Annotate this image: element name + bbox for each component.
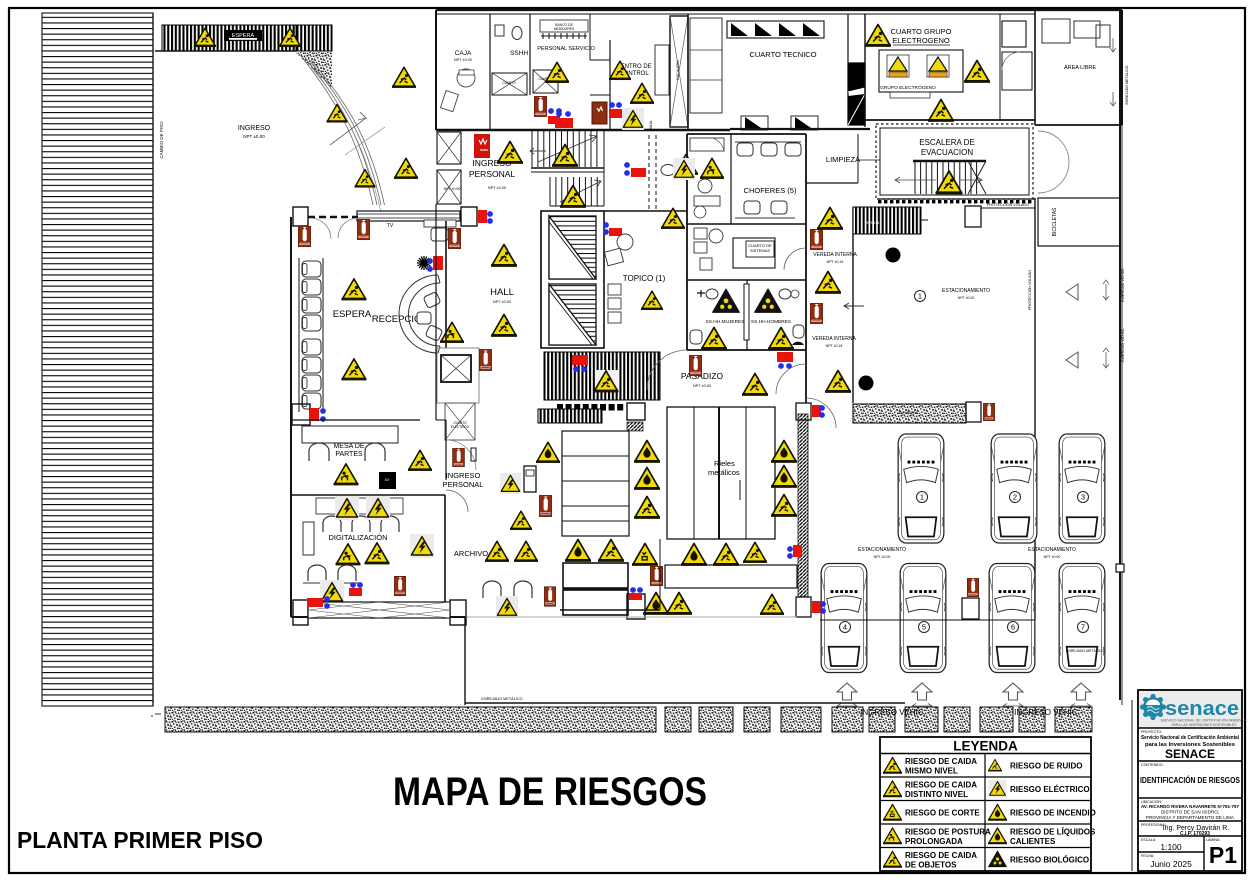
svg-text:PERSONAL: PERSONAL [443,480,484,489]
svg-text:RIESGO DE CAIDA: RIESGO DE CAIDA [905,757,977,766]
svg-text:SISTEMAS: SISTEMAS [750,248,771,253]
svg-text:SERVICIO NACIONAL DE CERTIFICA: SERVICIO NACIONAL DE CERTIFICACIÓN AMBIE… [1161,718,1248,723]
svg-text:NPT ±0.15: NPT ±0.15 [827,260,844,264]
svg-text:NPT ±0.00: NPT ±0.00 [444,187,461,191]
svg-text:SS.HH.MUJERES: SS.HH.MUJERES [706,319,745,325]
svg-text:RIESGO DE LÍQUIDOS: RIESGO DE LÍQUIDOS [1010,828,1096,837]
svg-text:2: 2 [1013,493,1017,502]
svg-text:ÁREA LIBRE: ÁREA LIBRE [1064,64,1096,71]
svg-text:ARCHIVO: ARCHIVO [454,549,488,558]
svg-text:SS.HH.HOMBRES: SS.HH.HOMBRES [751,319,791,325]
svg-text:CUARTO: CUARTO [502,81,516,85]
svg-text:PARA LAS INVERSIONES SOSTENIBL: PARA LAS INVERSIONES SOSTENIBLES [1172,723,1237,727]
svg-text:PERSONAL: PERSONAL [469,169,516,179]
svg-text:PROVINCIA Y DEPARTAMENTO DE LI: PROVINCIA Y DEPARTAMENTO DE LIMA [1146,815,1235,820]
svg-text:ESCALERA DE: ESCALERA DE [919,138,975,147]
svg-text:PROTECCIÓN VOLADO: PROTECCIÓN VOLADO [1027,270,1032,310]
svg-text:RIESGO DE CORTE: RIESGO DE CORTE [905,809,980,818]
svg-text:CAJA: CAJA [455,50,472,57]
svg-text:SSHH: SSHH [510,50,528,57]
svg-text:TV: TV [387,223,394,229]
svg-text:1:100: 1:100 [1160,842,1182,852]
svg-text:CUARTO GRUPO: CUARTO GRUPO [891,27,952,36]
svg-text:1: 1 [918,292,922,301]
svg-text:PLANTA PRIMER PISO: PLANTA PRIMER PISO [17,827,263,853]
svg-text:INGRESO: INGRESO [446,471,481,480]
svg-text:6: 6 [1011,623,1015,632]
svg-text:NPT ±0.00: NPT ±0.00 [493,300,511,304]
svg-text:DE OBJETOS: DE OBJETOS [905,861,957,870]
svg-text:RIESGO DE RUIDO: RIESGO DE RUIDO [1010,762,1082,771]
svg-text:NPT ±0.00: NPT ±0.00 [243,134,265,139]
svg-text:MESA DE: MESA DE [333,443,364,450]
svg-text:MISMO NIVEL: MISMO NIVEL [905,767,958,776]
svg-text:ESTACIONAMIENTO: ESTACIONAMIENTO [1028,547,1076,553]
svg-text:4: 4 [843,623,847,632]
svg-text:ENREJADO METÁLICO: ENREJADO METÁLICO [481,697,522,701]
svg-text:NPT ±0.00: NPT ±0.00 [958,296,975,300]
svg-text:3: 3 [1081,493,1085,502]
svg-text:LEYENDA: LEYENDA [953,739,1018,754]
svg-text:CUARTO TECNICO: CUARTO TECNICO [749,50,816,59]
svg-text:CAMBIO DE PISO: CAMBIO DE PISO [159,121,164,159]
svg-text:PROYECTO:: PROYECTO: [1141,730,1162,734]
svg-text:NPT ±0.00: NPT ±0.00 [874,555,891,559]
svg-text:RIESGO DE CAIDA: RIESGO DE CAIDA [905,781,977,790]
svg-text:ESCALA:: ESCALA: [1141,838,1156,842]
svg-text:ESCALERA: ESCALERA [676,60,680,80]
svg-text:JARDINERA: JARDINERA [898,411,919,415]
svg-text:PARTES: PARTES [335,451,363,458]
svg-text:7: 7 [1081,623,1085,632]
svg-text:NPT ±0.00: NPT ±0.00 [693,384,711,388]
svg-text:ESPERA: ESPERA [333,309,372,320]
svg-text:FECHA:: FECHA: [1141,854,1154,858]
svg-text:GRUPO ELECTRÓGENO: GRUPO ELECTRÓGENO [880,84,936,91]
svg-text:ENREJADO METÁLICO: ENREJADO METÁLICO [1066,649,1104,653]
svg-text:IDENTIFICACIÓN DE RIESGOS: IDENTIFICACIÓN DE RIESGOS [1140,776,1240,785]
svg-text:VEREDA: VEREDA [865,221,880,225]
svg-text:TOPICO (1): TOPICO (1) [623,274,666,283]
svg-text:ELECTROGENO: ELECTROGENO [892,36,950,45]
svg-text:RIESGO DE INCENDIO: RIESGO DE INCENDIO [1010,809,1096,818]
svg-text:LIMPIEZA: LIMPIEZA [826,155,860,164]
svg-text:BAJA: BAJA [649,120,653,129]
svg-text:NPT ±0.00: NPT ±0.00 [1044,555,1061,559]
svg-text:PASADIZO: PASADIZO [681,371,724,381]
svg-text:PROLONGADA: PROLONGADA [905,837,963,846]
svg-text:VEREDA INTERNA: VEREDA INTERNA [813,252,857,258]
svg-text:UBICACIÓN:: UBICACIÓN: [1141,799,1162,804]
svg-text:INGRESO: INGRESO [238,125,271,132]
svg-text:SENACE: SENACE [1165,747,1215,761]
svg-text:EVACUACION: EVACUACION [921,148,974,157]
svg-text:RIESGO BIOLÓGICO: RIESGO BIOLÓGICO [1010,856,1089,865]
svg-text:CHOFERES (5): CHOFERES (5) [744,186,797,195]
svg-text:ESTACIONAMIENTO: ESTACIONAMIENTO [942,288,990,294]
svg-text:ESTACIONAMIENTO: ESTACIONAMIENTO [858,547,906,553]
svg-text:Junio 2025: Junio 2025 [1150,859,1192,869]
svg-text:CALIENTES: CALIENTES [1010,837,1056,846]
svg-text:INGRESO VEHIC.: INGRESO VEHIC. [1014,708,1080,717]
svg-text:metálicos: metálicos [708,468,740,477]
svg-text:BICICLETAS: BICICLETAS [1052,207,1058,236]
svg-text:DISTINTO NIVEL: DISTINTO NIVEL [905,790,968,799]
svg-text:ENREJADO METÁLICO: ENREJADO METÁLICO [1125,65,1129,104]
svg-text:CONTENIDO:: CONTENIDO: [1141,763,1164,767]
svg-text:MAPA DE RIESGOS: MAPA DE RIESGOS [393,770,707,814]
svg-text:NPT ±0.00: NPT ±0.00 [488,186,506,190]
svg-text:Servicio Nacional de Certifica: Servicio Nacional de Certificación Ambie… [1141,735,1239,741]
svg-text:RIESGO DE POSTURA: RIESGO DE POSTURA [905,828,991,837]
svg-text:MEDIDORES: MEDIDORES [554,27,575,31]
svg-text:1: 1 [920,493,924,502]
svg-text:HALL: HALL [490,287,514,298]
svg-text:DIGITALIZACIÓN: DIGITALIZACIÓN [328,533,387,542]
svg-text:DISTRITO DE SAN ISIDRO,: DISTRITO DE SAN ISIDRO, [1161,810,1219,815]
svg-text:5: 5 [922,623,926,632]
svg-text:PERSONAL SERVICIO: PERSONAL SERVICIO [537,46,595,52]
svg-text:NPT ±0.15: NPT ±0.15 [826,344,843,348]
svg-text:ELÉCTRICO: ELÉCTRICO [451,424,470,429]
svg-text:NPT ±0.00: NPT ±0.00 [454,58,472,62]
svg-text:senace: senace [1165,698,1239,720]
svg-text:Rieles: Rieles [714,459,735,468]
svg-text:VEREDA INTERNA: VEREDA INTERNA [812,336,856,342]
svg-text:INGRESO VEHIC.: INGRESO VEHIC. [860,708,926,717]
svg-text:P1: P1 [1209,842,1237,868]
svg-text:RIESGO DE CAIDA: RIESGO DE CAIDA [905,851,977,860]
svg-text:RIESGO ELÉCTRICO: RIESGO ELÉCTRICO [1010,785,1090,794]
